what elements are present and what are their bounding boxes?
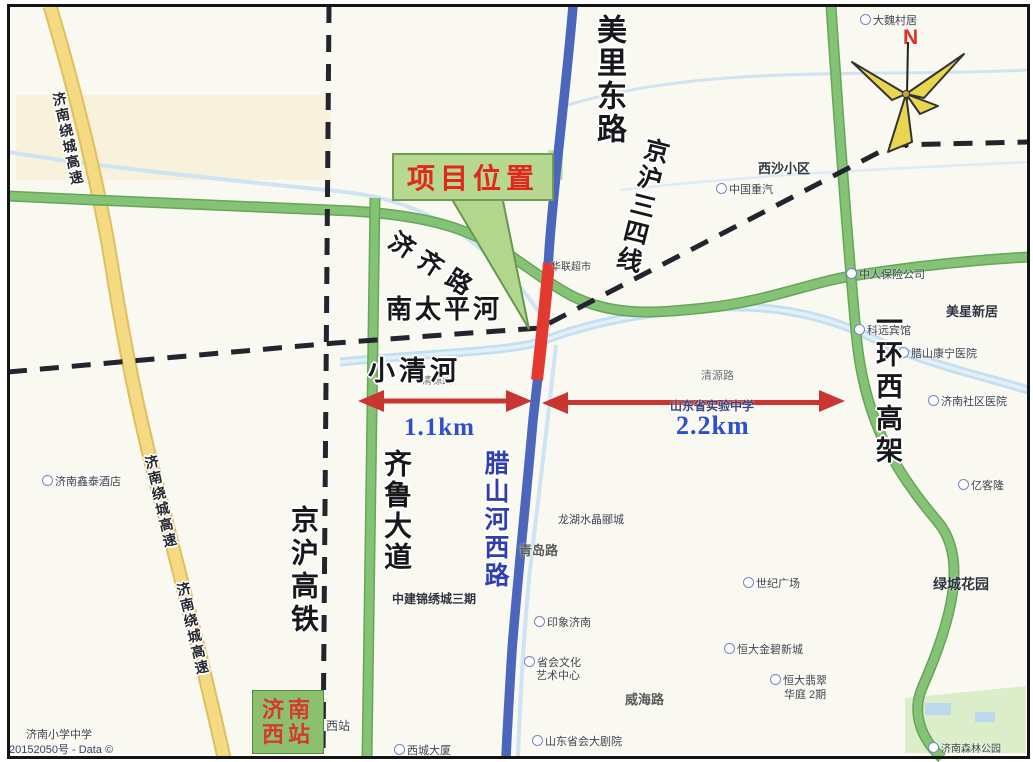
poi-icon <box>42 475 53 486</box>
poi-icon <box>846 268 857 279</box>
north-label: N <box>903 26 918 50</box>
project-location-label: 项目位置 <box>407 157 539 197</box>
map-label-shequ-hospital: 济南社区医院 <box>928 393 1007 409</box>
poi-icon <box>524 656 535 667</box>
station-label-line2: 西站 <box>262 722 314 747</box>
map-label-hualian: 华联超市 <box>551 258 591 273</box>
pond <box>925 703 951 715</box>
poi-icon <box>743 577 754 588</box>
project-location-callout: 项目位置 <box>392 153 554 201</box>
map-label-forest-park: 济南森林公园 <box>928 740 1001 755</box>
poi-icon <box>928 742 939 753</box>
poi-icon <box>716 183 727 194</box>
map-label-xintai-hotel: 济南鑫泰酒店 <box>42 473 121 489</box>
map-label-culture-2: 艺术中心 <box>536 667 580 683</box>
map-label-xizhan: 西站 <box>326 717 350 734</box>
map-label-hengda-feicui-2: 华庭 2期 <box>784 686 826 702</box>
map-label-jinbi: 恒大金碧新城 <box>724 641 803 657</box>
map-label-zhongren: 中人保险公司 <box>846 266 925 282</box>
poi-icon <box>394 744 405 755</box>
poi-icon <box>534 616 545 627</box>
map-label-meixing: 美星新居 <box>946 301 998 320</box>
map-label-weihai-road: 威海路 <box>625 689 664 708</box>
map-label-qingyuan-east: 清源路 <box>701 367 734 383</box>
map-label-shiji: 世纪广场 <box>743 575 800 591</box>
map-label-lashan-hospital: 腊山康宁医院 <box>898 345 977 361</box>
poi-icon <box>724 643 735 654</box>
project-location-map: 美里东路 京沪三四线 济齐路 南太平河 小清河 齐鲁大道 京沪高铁 腊山河西路 … <box>0 0 1033 762</box>
road-label-west-ring: 一环西高架 <box>868 308 907 468</box>
map-label-school: 济南小学中学 <box>26 726 92 742</box>
station-label-line1: 济南 <box>262 697 314 722</box>
river-label-xiaoqing: 小清河 <box>368 349 461 388</box>
road-label-qilu-avenue: 齐鲁大道 <box>376 449 416 573</box>
map-label-qingdao-road: 青岛路 <box>519 540 558 559</box>
map-label-lvcheng: 绿城花园 <box>933 574 989 594</box>
map-label-zhongqi: 中国重汽 <box>716 181 773 197</box>
map-label-theater: 山东省会大剧院 <box>532 733 622 749</box>
jinan-west-station-badge: 济南 西站 <box>252 690 324 754</box>
map-watermark: 20152050号 - Data © <box>9 741 113 757</box>
map-label-xicheng-tower: 西城大厦 <box>394 742 451 758</box>
map-label-yinxiang: 印象济南 <box>534 614 591 630</box>
poi-icon <box>532 735 543 746</box>
poi-icon <box>928 395 939 406</box>
distance-label-left: 1.1km <box>404 414 475 442</box>
road-label-lashan-west: 腊山河西路 <box>477 450 513 590</box>
river-label-south-taiping: 南太平河 <box>386 289 502 326</box>
distance-label-right: 2.2km <box>676 411 750 441</box>
pond <box>975 712 995 722</box>
map-label-xisha: 西沙小区 <box>758 158 810 177</box>
road-label-meili-east: 美里东路 <box>586 14 630 146</box>
map-label-longhu: 龙湖水晶郦城 <box>558 511 624 527</box>
poi-icon <box>854 324 865 335</box>
poi-icon <box>860 14 871 25</box>
rail-label-jinghu-hsr: 京沪高铁 <box>283 505 323 637</box>
poi-icon <box>958 479 969 490</box>
map-label-yikelong: 亿客隆 <box>958 477 1004 493</box>
map-label-zhongjian: 中建锦绣城三期 <box>392 590 476 607</box>
poi-icon <box>770 674 781 685</box>
